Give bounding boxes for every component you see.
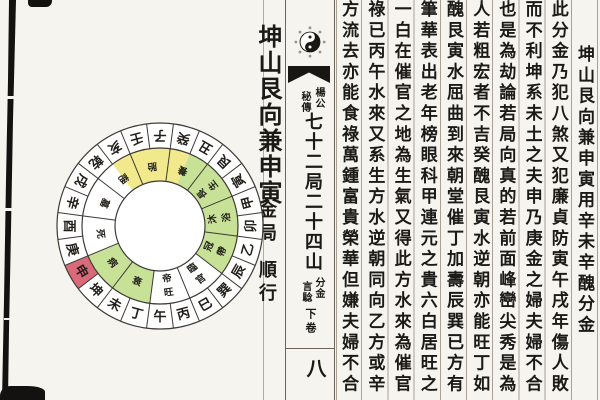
fishtail-mark [288,66,330,83]
text-column: 祿已丙午水來又系生方水逆朝同向乙方或辛 [361,0,387,400]
volume-label: 下卷 [302,308,318,336]
mountain-label: 午 [153,309,166,324]
spine-attribution-left: 秘傳 [298,91,310,113]
yin-yang-icon [293,24,327,60]
mountain-label: 卯 [243,219,258,232]
text-column: 一白在催官之地為生氣又得此方水來為催官 [387,0,413,400]
spine-subtitle-left: 言騐 [299,281,311,303]
spine-divider [286,348,334,349]
compass-diagram: 子癸丑艮寅甲卯乙辰巽巳丙午丁未坤申庚酉辛戌乾亥壬胎養長生沐浴冠帶臨官帝旺衰病死墓… [50,116,270,336]
sector-label: 旺 [163,287,174,299]
spine-subtitle-right: 分金 [312,277,324,299]
mountain-label: 酉 [62,219,77,232]
spine-attribution-right: 楊公 [312,87,324,109]
right-page: 坤山艮向兼申寅用辛未辛醜分金此分金乃犯八煞又犯廉貞防寅午戌年傷人敗而不利坤系未土… [336,0,598,400]
text-column: 坤山艮向兼申寅用辛未辛醜分金 [571,0,597,400]
spine: 楊公 秘傳 七十二局二十四山 分金 言騐 下卷 八 [285,0,335,400]
page-edge-gap [5,208,15,211]
page-edge-gap [6,96,16,99]
text-column: 而不利坤系未土之夫申乃庚金之婦夫婦不合 [518,0,544,400]
page-edge-gap [4,318,14,320]
sector-label: 死 [94,227,106,239]
text-column: 也是為劫論若局向真的若前面峰巒尖秀是為 [492,0,518,400]
mountain-label: 子 [153,128,166,143]
text-column: 人若粗宏者不吉癸醜艮寅水逆朝亦能旺丁如 [466,0,492,400]
page-number: 八 [300,358,329,378]
text-column: 此分金乃犯八煞又犯廉貞防寅午戌年傷人敗 [545,0,571,400]
spine-title: 七十二局二十四山 [300,112,326,272]
text-column: 筆華表出老年榜眼科甲連元之貴六白居旺之 [414,0,440,400]
book-page: { "page": { "right_page": { "columns": [… [0,0,600,400]
text-column: 方流去亦能食祿萬鍾富貴榮華但嫌夫婦不合 [335,0,361,400]
text-column: 醜艮寅水屈曲到來朝堂催丁加壽辰巽已方有 [440,0,466,400]
